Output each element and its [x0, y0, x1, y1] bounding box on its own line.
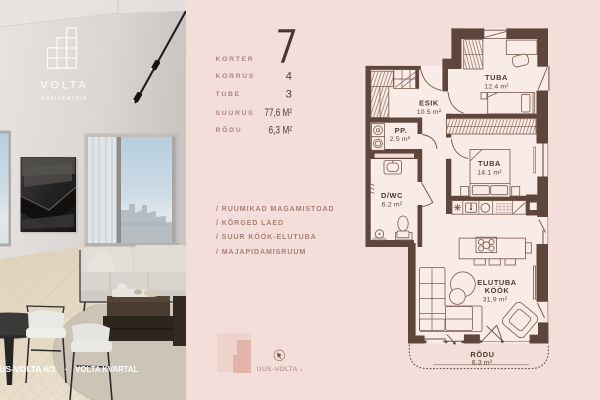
svg-text:4: 4	[286, 70, 293, 82]
svg-text:2.5 m²: 2.5 m²	[390, 136, 411, 143]
svg-text:TUBA: TUBA	[478, 159, 501, 168]
svg-text:D/WC: D/WC	[381, 191, 403, 200]
svg-text:6.2 m²: 6.2 m²	[382, 202, 403, 209]
svg-text:RÕDU: RÕDU	[470, 350, 494, 359]
svg-text:12.4 m²: 12.4 m²	[484, 84, 509, 91]
svg-text:PP.: PP.	[395, 126, 408, 135]
svg-text:UUS-VOLTA 6/2: UUS-VOLTA 6/2	[0, 364, 56, 374]
svg-text:·: ·	[65, 364, 68, 374]
svg-text:RESIDENTSID: RESIDENTSID	[41, 96, 88, 101]
svg-text:10.5 m²: 10.5 m²	[417, 109, 442, 116]
svg-text:VOLTA: VOLTA	[40, 80, 88, 92]
svg-text:31.9 m²: 31.9 m²	[483, 297, 508, 304]
svg-text:6,3 M²: 6,3 M²	[269, 124, 293, 136]
svg-text:6.3 m²: 6.3 m²	[472, 360, 493, 367]
svg-text:ESIK: ESIK	[419, 99, 439, 108]
svg-text:VOLTA KVARTAL: VOLTA KVARTAL	[75, 364, 138, 374]
svg-text:77,6 M²: 77,6 M²	[265, 107, 293, 119]
svg-text:3: 3	[286, 88, 293, 100]
svg-text:TUBA: TUBA	[485, 73, 508, 82]
svg-text:KÖÖK: KÖÖK	[485, 286, 510, 295]
svg-text:14.1 m²: 14.1 m²	[477, 170, 502, 177]
